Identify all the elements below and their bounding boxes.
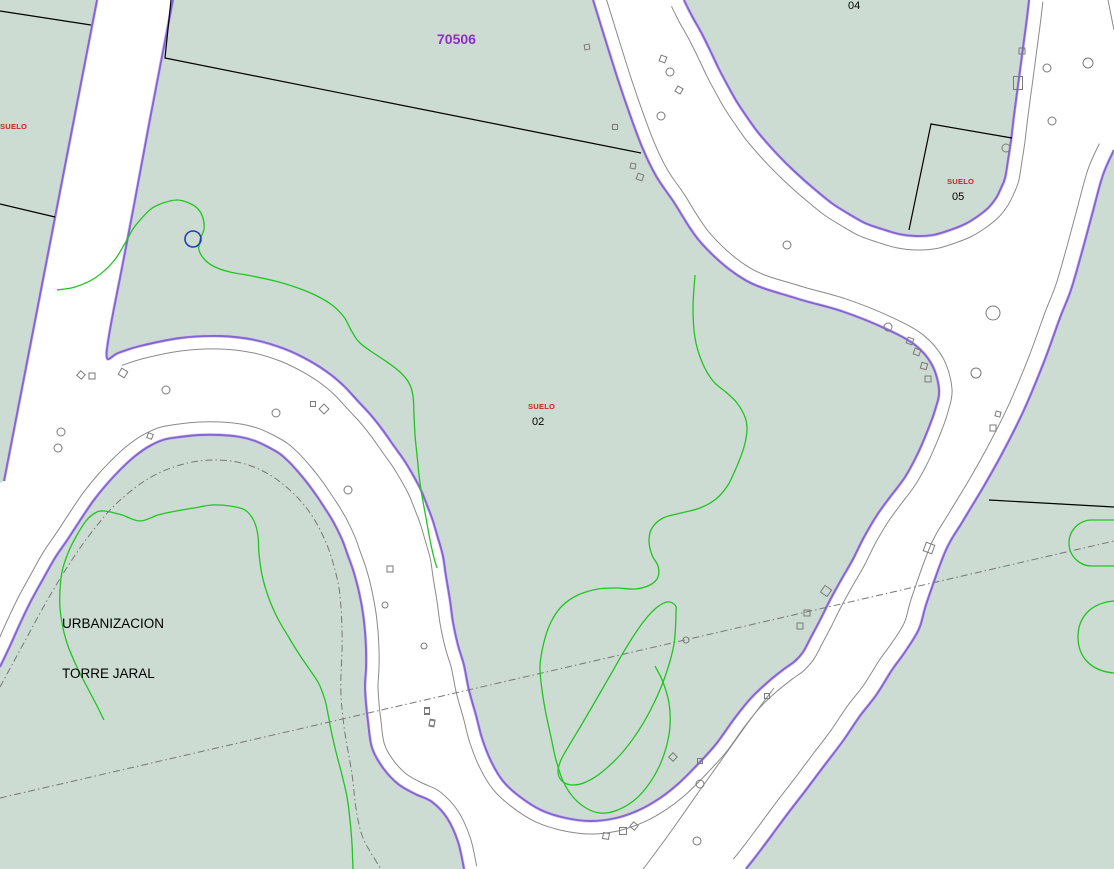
svg-text:SUELO: SUELO xyxy=(0,122,27,131)
svg-text:70506: 70506 xyxy=(437,31,476,47)
svg-text:SUELO: SUELO xyxy=(947,177,974,186)
svg-text:TORRE JARAL: TORRE JARAL xyxy=(62,666,155,681)
svg-text:04: 04 xyxy=(848,0,860,12)
svg-text:URBANIZACION: URBANIZACION xyxy=(62,616,164,631)
svg-text:05: 05 xyxy=(952,191,964,203)
svg-text:SUELO: SUELO xyxy=(528,402,555,411)
svg-text:02: 02 xyxy=(532,416,544,428)
